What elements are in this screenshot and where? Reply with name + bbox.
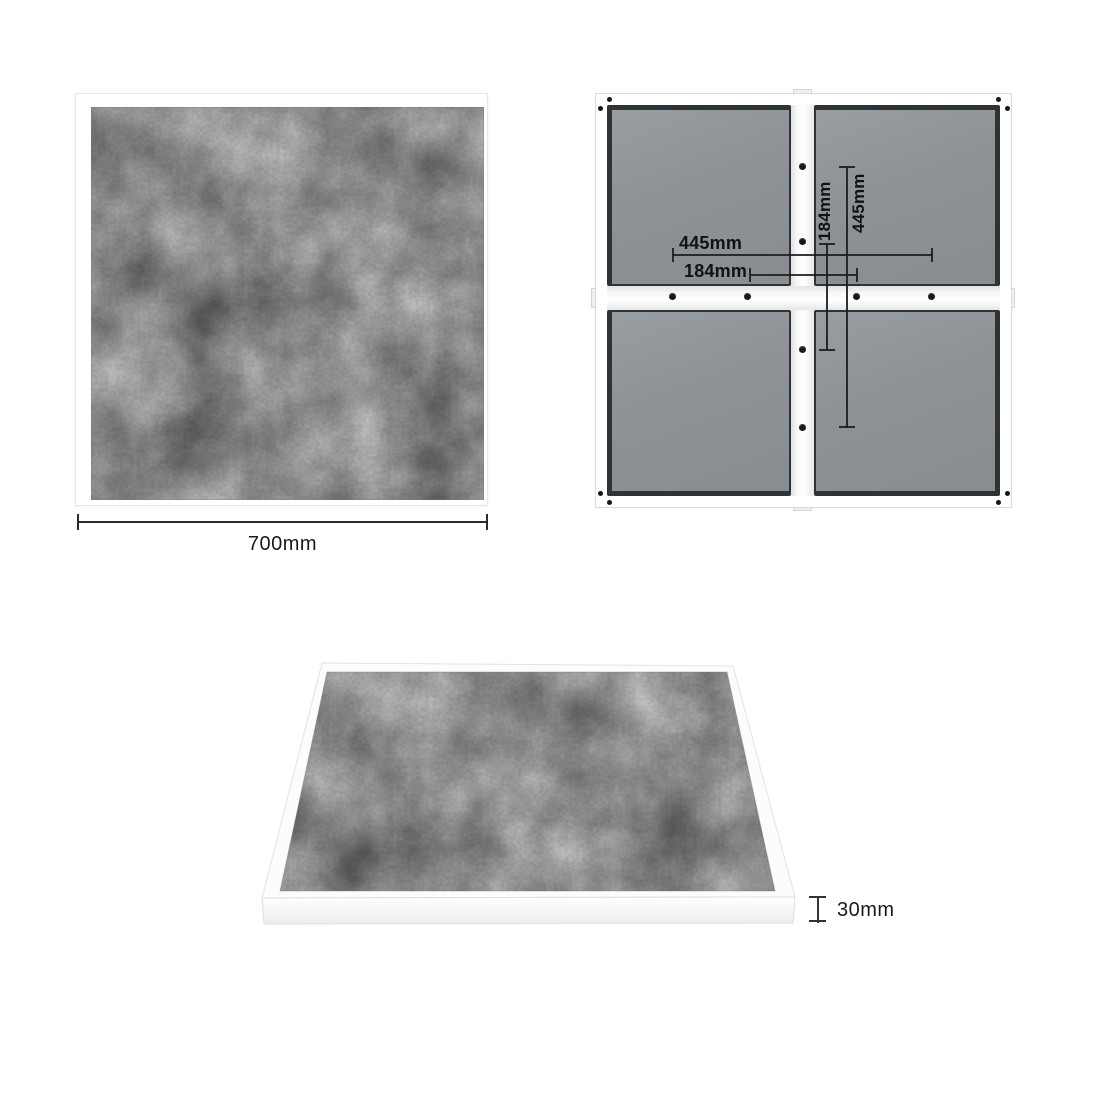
tabletop-dimension-diagram: 700mm [0,0,1100,1100]
dim-label-184mm-vertical: 184mm [815,183,835,241]
width-dimension-label: 700mm [70,533,495,556]
dim-label-184mm-horizontal: 184mm [684,261,747,282]
width-dimension-tick-right [486,514,488,530]
dim-label-445mm-vertical: 445mm [849,175,869,233]
perspective-concrete-surface [270,663,785,895]
top-view: 700mm [70,90,500,570]
dim-label-445mm-horizontal: 445mm [679,233,742,254]
thickness-tick-top [809,896,826,898]
underside-dimension-lines [595,93,1012,508]
thickness-tick-bottom [809,920,826,922]
perspective-view: 30mm [240,655,920,950]
perspective-front-face [262,897,795,924]
thickness-dimension-label: 30mm [837,899,895,922]
width-dimension-tick-left [77,514,79,530]
perspective-tabletop [240,655,840,950]
underside-view: 445mm 184mm 184mm 445mm [595,93,1014,510]
width-dimension-line [78,521,488,523]
top-view-frame [75,93,488,506]
top-view-concrete-surface [91,107,484,500]
